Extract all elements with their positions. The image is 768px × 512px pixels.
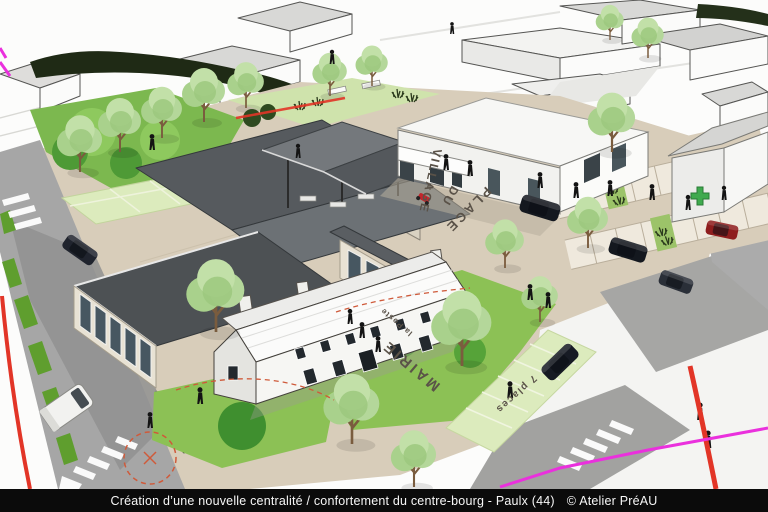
bush xyxy=(243,109,261,127)
site-plan-rendering: PLACE DU VILLAGE MAIRIE la Poste 7 place… xyxy=(0,0,768,489)
caption-credit: © Atelier PréAU xyxy=(567,494,658,508)
caption-title: Création d’une nouvelle centralité / con… xyxy=(110,494,554,508)
bench xyxy=(330,202,346,207)
bench xyxy=(358,194,374,199)
bench xyxy=(300,196,316,201)
caption-bar: Création d’une nouvelle centralité / con… xyxy=(0,489,768,512)
architectural-rendering-frame: PLACE DU VILLAGE MAIRIE la Poste 7 place… xyxy=(0,0,768,512)
